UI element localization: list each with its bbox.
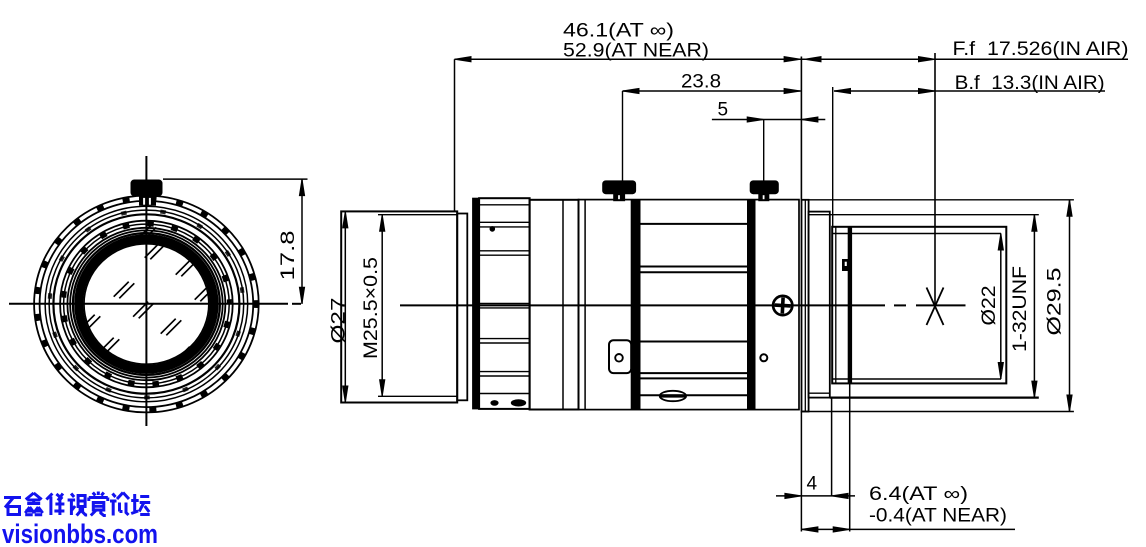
svg-text:Ø22: Ø22 bbox=[979, 286, 1000, 326]
svg-text:1-32UNF: 1-32UNF bbox=[1010, 266, 1031, 352]
svg-text:4: 4 bbox=[807, 474, 818, 495]
svg-text:F.f 17.526(IN AIR): F.f 17.526(IN AIR) bbox=[953, 39, 1129, 60]
svg-text:visionbbs.com: visionbbs.com bbox=[2, 519, 158, 547]
svg-text:46.1(AT ∞): 46.1(AT ∞) bbox=[563, 21, 674, 42]
svg-text:Ø29.5: Ø29.5 bbox=[1044, 268, 1065, 336]
svg-text:Ø27: Ø27 bbox=[329, 298, 350, 344]
svg-text:6.4(AT ∞): 6.4(AT ∞) bbox=[869, 484, 968, 505]
svg-text:-0.4(AT NEAR): -0.4(AT NEAR) bbox=[869, 506, 1007, 527]
svg-text:B.f 13.3(IN AIR): B.f 13.3(IN AIR) bbox=[955, 73, 1105, 94]
svg-text:23.8: 23.8 bbox=[681, 72, 721, 93]
svg-text:5: 5 bbox=[718, 99, 729, 120]
svg-text:M25.5×0.5: M25.5×0.5 bbox=[361, 257, 382, 359]
svg-text:17.8: 17.8 bbox=[278, 231, 299, 281]
svg-text:52.9(AT NEAR): 52.9(AT NEAR) bbox=[563, 40, 709, 61]
